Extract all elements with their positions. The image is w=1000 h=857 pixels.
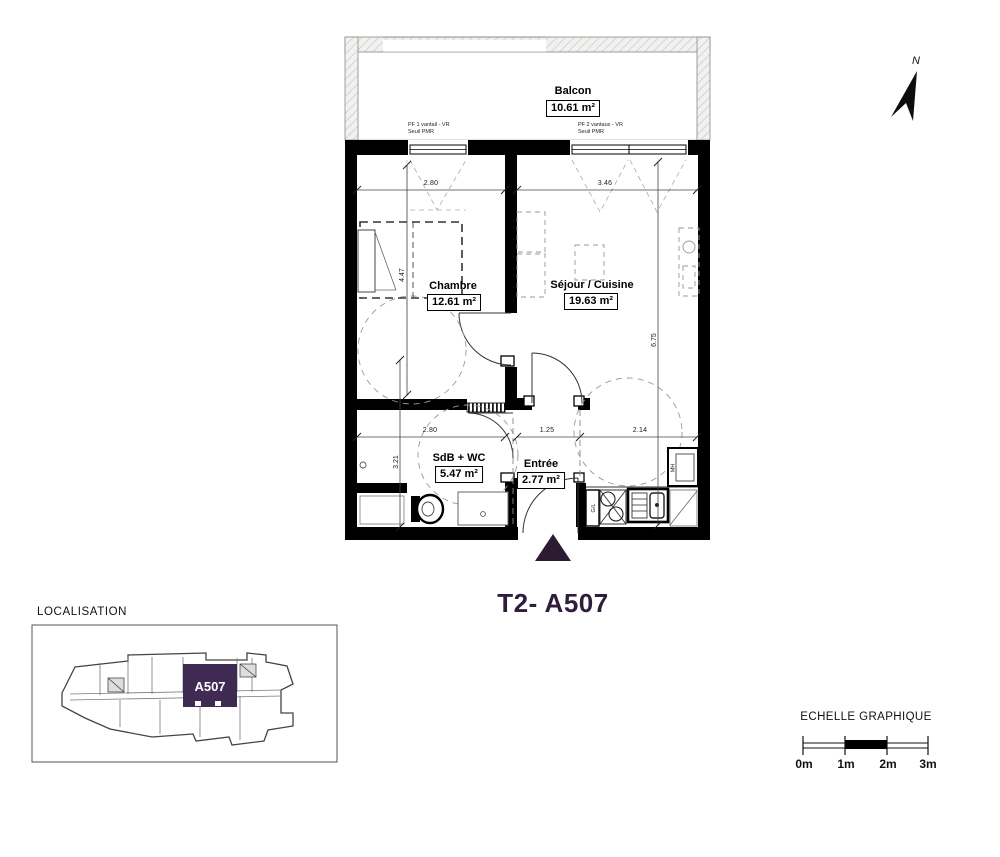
window-pf2 <box>570 140 688 155</box>
sofa-table-furniture <box>517 212 699 297</box>
hob-fixture <box>600 490 626 524</box>
toilet-fixture <box>411 495 443 523</box>
mh-niche: MH <box>668 448 698 486</box>
washer-label: G/L <box>591 504 597 513</box>
scale-bar <box>803 736 928 755</box>
kitchen-strip <box>586 487 698 526</box>
localisation-map: A507 <box>32 625 337 762</box>
bed-furniture <box>358 222 462 298</box>
floor-plan-sheet: MH G/L 4.47 6.75 3.21 N <box>0 0 1000 857</box>
unit-a507-label: A507 <box>194 679 225 694</box>
wall-grille <box>467 403 505 412</box>
balcony <box>345 37 710 140</box>
dim-chambre-height: 4.47 <box>399 268 406 282</box>
window-pf1 <box>408 140 468 155</box>
north-label: N <box>912 55 920 67</box>
plan-linework: MH G/L 4.47 6.75 3.21 N <box>0 0 1000 857</box>
entrance-marker <box>535 534 571 561</box>
dimension-ticks <box>353 158 701 531</box>
entree-dashed-bounds <box>513 410 580 525</box>
north-arrow: N <box>891 55 920 121</box>
dimension-lines <box>357 162 697 527</box>
counter-corner <box>670 490 697 526</box>
kitchen-column-symbol <box>683 241 695 253</box>
dim-sejour-height: 6.75 <box>651 333 658 347</box>
window-swing-dashes <box>410 160 686 212</box>
washbasin-fixture <box>458 492 508 525</box>
mh-label: MH <box>671 464 677 473</box>
dim-sdb-height: 3.21 <box>393 455 400 469</box>
sink-fixture <box>628 489 668 522</box>
